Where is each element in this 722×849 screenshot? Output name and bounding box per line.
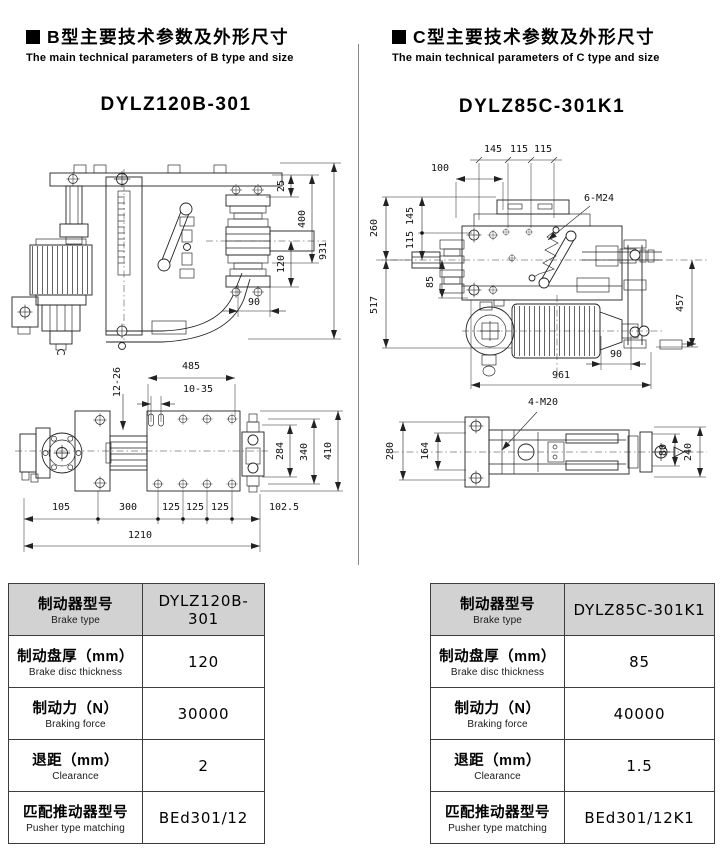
plan-coupling — [106, 436, 147, 470]
label-cn: 制动器型号 — [433, 593, 562, 614]
guide-column — [106, 169, 142, 347]
label-cn: 退距（mm） — [433, 749, 562, 770]
table-cell-label: 制动器型号 Brake type — [431, 584, 565, 636]
dim-label-10-35: 10-35 — [183, 384, 213, 395]
dim-label-4-M20: 4-M20 — [528, 397, 558, 408]
dim-label-90: 90 — [248, 297, 260, 308]
dim-label-90c: 90 — [610, 349, 622, 360]
c-type-plan-view: 4-M20 280 164 80 240 — [362, 392, 722, 520]
table-row: 制动力（N） Braking force 30000 — [9, 688, 265, 740]
section-marker-square — [26, 30, 40, 44]
value: 2 — [145, 757, 262, 775]
thruster — [12, 186, 92, 355]
dim-label-115-145: 115 145 — [405, 207, 416, 249]
dim-label-25: 25 — [276, 180, 287, 192]
value: 120 — [145, 653, 262, 671]
label-cn: 制动盘厚（mm） — [433, 645, 562, 666]
table-row: 制动盘厚（mm） Brake disc thickness 120 — [9, 636, 265, 688]
dim-label-931: 931 — [318, 242, 329, 260]
label-cn: 制动力（N） — [433, 697, 562, 718]
table-cell-label: 匹配推动器型号 Pusher type matching — [9, 792, 143, 844]
dim-label-164: 164 — [420, 442, 431, 460]
table-row: 匹配推动器型号 Pusher type matching BEd301/12 — [9, 792, 265, 844]
table-cell-value: 120 — [143, 636, 265, 688]
catalog-page: { "sections": [ { "heading_cn": "B型主要技术参… — [0, 0, 722, 849]
table-row: 制动力（N） Braking force 40000 — [431, 688, 715, 740]
label-cn: 退距（mm） — [11, 749, 140, 770]
label-en: Pusher type matching — [11, 823, 140, 834]
dim-label-100: 100 — [431, 163, 449, 174]
table-row: 制动器型号 Brake type DYLZ120B-301 — [9, 584, 265, 636]
dim-label-6-M24: 6-M24 — [584, 193, 614, 204]
table-cell-value: BEd301/12K1 — [565, 792, 715, 844]
heading-cn-b: B型主要技术参数及外形尺寸 — [47, 24, 289, 49]
plan-motor — [20, 428, 82, 482]
table-cell-value: 40000 — [565, 688, 715, 740]
model-title-b: DYLZ120B-301 — [0, 94, 352, 116]
table-cell-value: 30000 — [143, 688, 265, 740]
dim-label-115b: 115 — [534, 144, 552, 155]
dim-label-125b: 125 — [186, 502, 204, 513]
model-title-c: DYLZ85C-301K1 — [362, 96, 722, 118]
table-cell-label: 退距（mm） Clearance — [9, 740, 143, 792]
label-cn: 匹配推动器型号 — [433, 801, 562, 822]
c-type-spec-table: 制动器型号 Brake type DYLZ85C-301K1 制动盘厚（mm） … — [430, 583, 715, 844]
label-en: Clearance — [433, 771, 562, 782]
value: BEd301/12K1 — [567, 809, 712, 827]
value: DYLZ120B-301 — [145, 592, 262, 628]
dim-label-120: 120 — [276, 255, 287, 273]
label-en: Brake disc thickness — [11, 667, 140, 678]
label-cn: 制动力（N） — [11, 697, 140, 718]
c-plan-dimensions: 4-M20 280 164 80 240 — [385, 397, 706, 480]
table-cell-value: BEd301/12 — [143, 792, 265, 844]
label-en: Brake disc thickness — [433, 667, 562, 678]
dim-label-284: 284 — [275, 442, 286, 460]
dim-label-125c: 125 — [211, 502, 229, 513]
dim-label-115a: 115 — [510, 144, 528, 155]
label-en: Pusher type matching — [433, 823, 562, 834]
table-cell-label: 匹配推动器型号 Pusher type matching — [431, 792, 565, 844]
label-en: Braking force — [11, 719, 140, 730]
table-cell-value: 1.5 — [565, 740, 715, 792]
dim-label-125a: 125 — [162, 502, 180, 513]
b-type-front-view: 25 400 120 931 90 — [10, 135, 358, 355]
c-type-front-view: 145 115 115 100 6-M24 260 115 145 517 85… — [362, 140, 722, 392]
value: 40000 — [567, 705, 712, 723]
dim-label-260: 260 — [369, 219, 380, 237]
dim-label-961: 961 — [552, 370, 570, 381]
label-en: Clearance — [11, 771, 140, 782]
label-cn: 匹配推动器型号 — [11, 801, 140, 822]
overhead-rail — [50, 165, 282, 187]
table-row: 制动盘厚（mm） Brake disc thickness 85 — [431, 636, 715, 688]
table-cell-label: 退距（mm） Clearance — [431, 740, 565, 792]
dim-label-12-26: 12-26 — [112, 367, 123, 397]
lever-linkage — [158, 203, 194, 278]
value: 30000 — [145, 705, 262, 723]
label-en: Braking force — [433, 719, 562, 730]
table-cell-label: 制动力（N） Braking force — [9, 688, 143, 740]
b-plan-dimensions: 485 12-26 10-35 284 340 410 105 300 125 — [24, 361, 343, 552]
value: BEd301/12 — [145, 809, 262, 827]
value: DYLZ85C-301K1 — [567, 601, 712, 619]
dim-label-300: 300 — [119, 502, 137, 513]
label-en: Brake type — [11, 615, 140, 626]
dim-label-485: 485 — [182, 361, 200, 372]
table-cell-value: DYLZ85C-301K1 — [565, 584, 715, 636]
dim-label-105: 105 — [52, 502, 70, 513]
table-cell-label: 制动盘厚（mm） Brake disc thickness — [9, 636, 143, 688]
label-en: Brake type — [433, 615, 562, 626]
dim-label-410: 410 — [323, 442, 334, 460]
section-marker-square — [392, 30, 406, 44]
label-cn: 制动器型号 — [11, 593, 140, 614]
table-cell-label: 制动力（N） Braking force — [431, 688, 565, 740]
heading-en-c: The main technical parameters of C type … — [392, 52, 660, 64]
section-header-b: B型主要技术参数及外形尺寸 The main technical paramet… — [26, 24, 294, 64]
thruster-motor — [466, 300, 649, 376]
b-type-plan-view: 485 12-26 10-35 284 340 410 105 300 125 — [10, 358, 358, 568]
b-type-spec-table: 制动器型号 Brake type DYLZ120B-301 制动盘厚（mm） B… — [8, 583, 265, 844]
dim-label-102-5: 102.5 — [269, 502, 299, 513]
dim-label-85: 85 — [425, 276, 436, 288]
table-row: 制动器型号 Brake type DYLZ85C-301K1 — [431, 584, 715, 636]
dim-label-280: 280 — [385, 442, 396, 460]
table-cell-value: DYLZ120B-301 — [143, 584, 265, 636]
table-row: 匹配推动器型号 Pusher type matching BEd301/12K1 — [431, 792, 715, 844]
section-header-c: C型主要技术参数及外形尺寸 The main technical paramet… — [392, 24, 660, 64]
column-divider — [358, 44, 359, 565]
brake-head-assembly — [206, 184, 326, 298]
table-row: 退距（mm） Clearance 2 — [9, 740, 265, 792]
dim-label-340: 340 — [299, 443, 310, 461]
heading-cn-c: C型主要技术参数及外形尺寸 — [413, 24, 655, 49]
table-cell-value: 2 — [143, 740, 265, 792]
table-row: 退距（mm） Clearance 1.5 — [431, 740, 715, 792]
dim-label-145: 145 — [484, 144, 502, 155]
plan-main-frame — [15, 411, 268, 491]
value: 85 — [567, 653, 712, 671]
dim-label-457: 457 — [675, 294, 686, 312]
label-cn: 制动盘厚（mm） — [11, 645, 140, 666]
disc-hub — [412, 240, 464, 293]
plan-clamp — [242, 414, 264, 492]
dim-label-400: 400 — [297, 210, 308, 228]
dim-label-1210: 1210 — [128, 530, 152, 541]
value: 1.5 — [567, 757, 712, 775]
table-cell-label: 制动盘厚（mm） Brake disc thickness — [431, 636, 565, 688]
dim-label-240: 240 — [683, 443, 694, 461]
heading-en-b: The main technical parameters of B type … — [26, 52, 294, 64]
table-cell-value: 85 — [565, 636, 715, 688]
table-cell-label: 制动器型号 Brake type — [9, 584, 143, 636]
dim-label-80: 80 — [658, 444, 669, 456]
dim-label-517: 517 — [369, 296, 380, 314]
